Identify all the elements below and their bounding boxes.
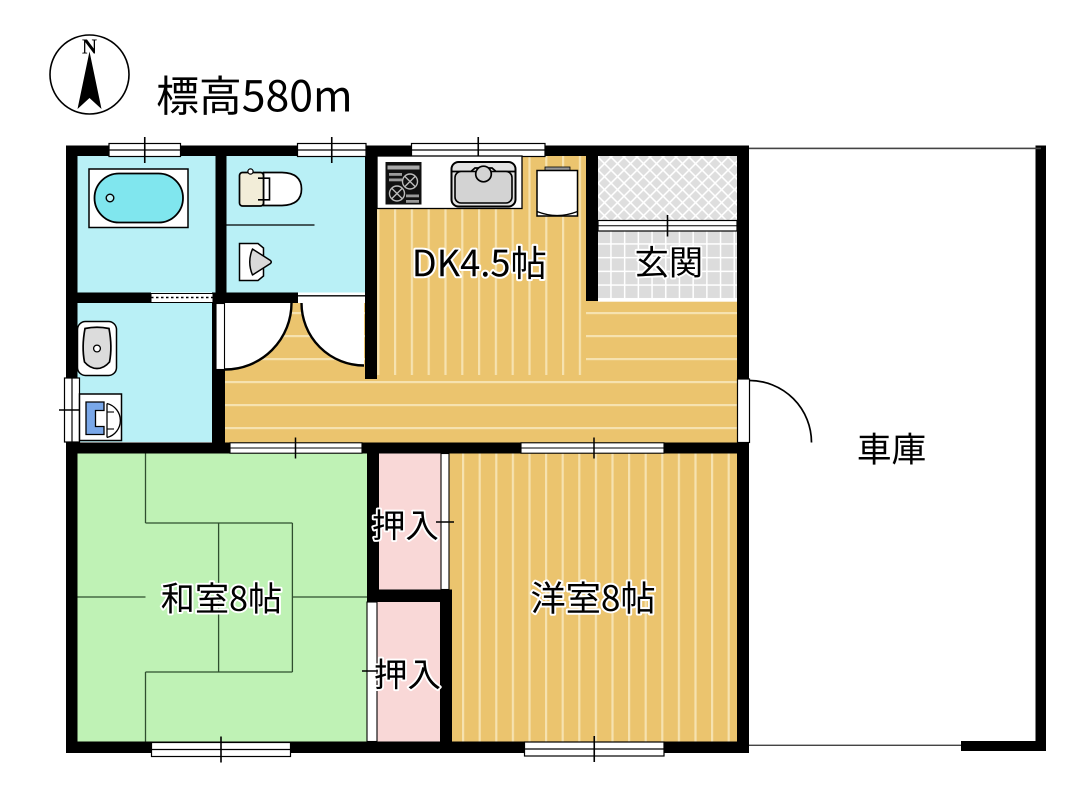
svg-text:N: N (82, 35, 97, 59)
